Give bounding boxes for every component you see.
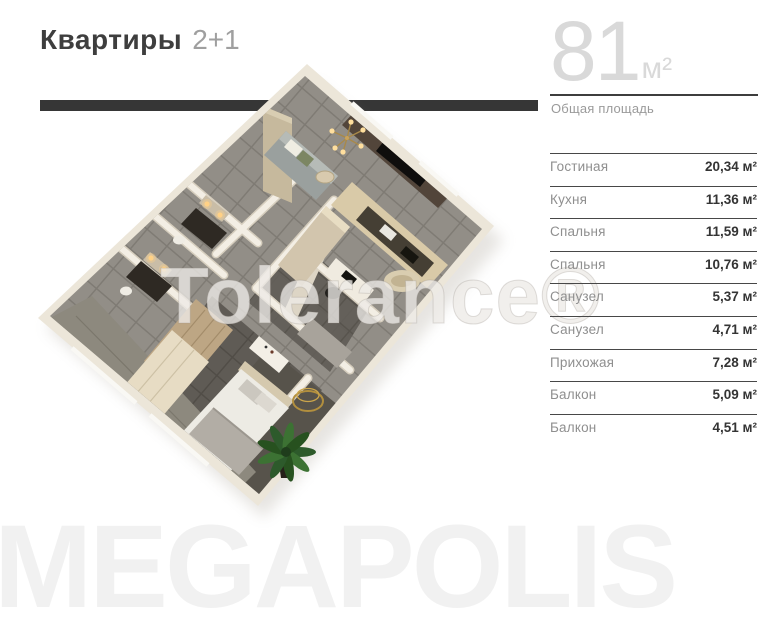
table-row: Санузел 4,71 м² — [550, 316, 757, 349]
room-area: 4,71 м² — [712, 322, 757, 337]
room-name: Балкон — [550, 387, 596, 402]
room-area: 4,51 м² — [712, 420, 757, 435]
room-name: Спальня — [550, 257, 606, 272]
table-row: Спальня 11,59 м² — [550, 218, 757, 251]
room-area: 7,28 м² — [712, 355, 757, 370]
room-area: 20,34 м² — [705, 159, 757, 174]
room-name: Санузел — [550, 289, 604, 304]
room-name: Прихожая — [550, 355, 614, 370]
room-name: Спальня — [550, 224, 606, 239]
room-area: 5,09 м² — [712, 387, 757, 402]
room-area: 5,37 м² — [712, 289, 757, 304]
total-area-label: Общая площадь — [551, 101, 654, 116]
table-row: Балкон 5,09 м² — [550, 381, 757, 414]
total-area-divider — [550, 94, 758, 96]
room-name: Кухня — [550, 192, 587, 207]
room-name: Балкон — [550, 420, 596, 435]
room-area: 11,36 м² — [706, 192, 757, 207]
table-row: Санузел 5,37 м² — [550, 283, 757, 316]
page-title: Квартиры 2+1 — [40, 24, 240, 56]
page-title-suffix: 2+1 — [192, 24, 240, 56]
room-name: Гостиная — [550, 159, 608, 174]
page-title-text: Квартиры — [40, 24, 182, 56]
table-row: Балкон 4,51 м² — [550, 414, 757, 447]
room-name: Санузел — [550, 322, 604, 337]
table-row: Спальня 10,76 м² — [550, 251, 757, 284]
room-area: 11,59 м² — [706, 224, 757, 239]
total-area-value: 81 — [550, 14, 639, 88]
table-row: Прихожая 7,28 м² — [550, 349, 757, 382]
total-area: 81 м² — [550, 14, 758, 88]
rooms-table: Гостиная 20,34 м² Кухня 11,36 м² Спальня… — [550, 153, 757, 446]
room-area: 10,76 м² — [705, 257, 757, 272]
table-row: Кухня 11,36 м² — [550, 186, 757, 219]
table-row: Гостиная 20,34 м² — [550, 153, 757, 186]
page: { "header": { "title": "Квартиры", "subt… — [0, 0, 784, 612]
total-area-unit: м² — [641, 52, 672, 86]
